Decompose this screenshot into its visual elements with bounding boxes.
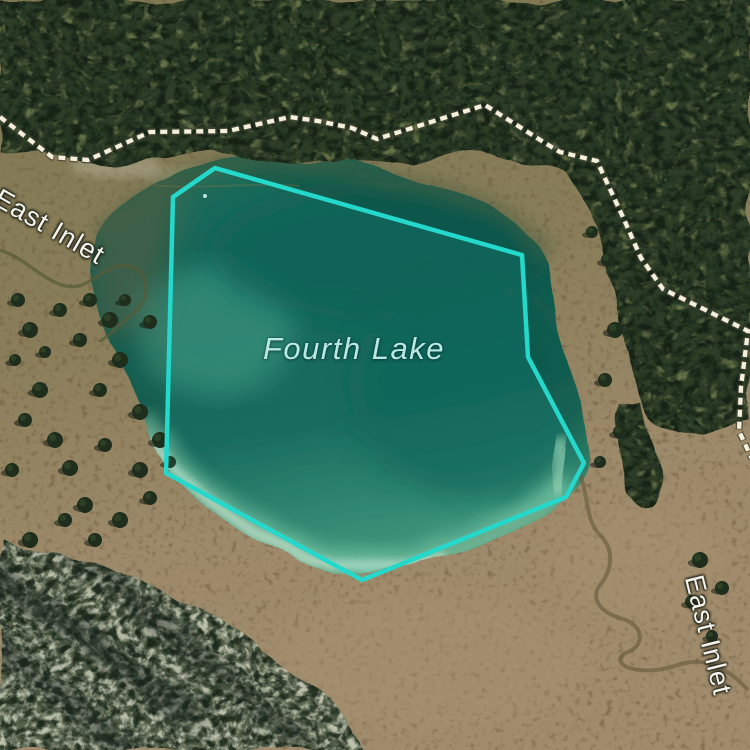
map-canvas[interactable]: Fourth Lake East Inlet East Inlet — [0, 0, 750, 750]
satellite-imagery — [0, 0, 750, 750]
